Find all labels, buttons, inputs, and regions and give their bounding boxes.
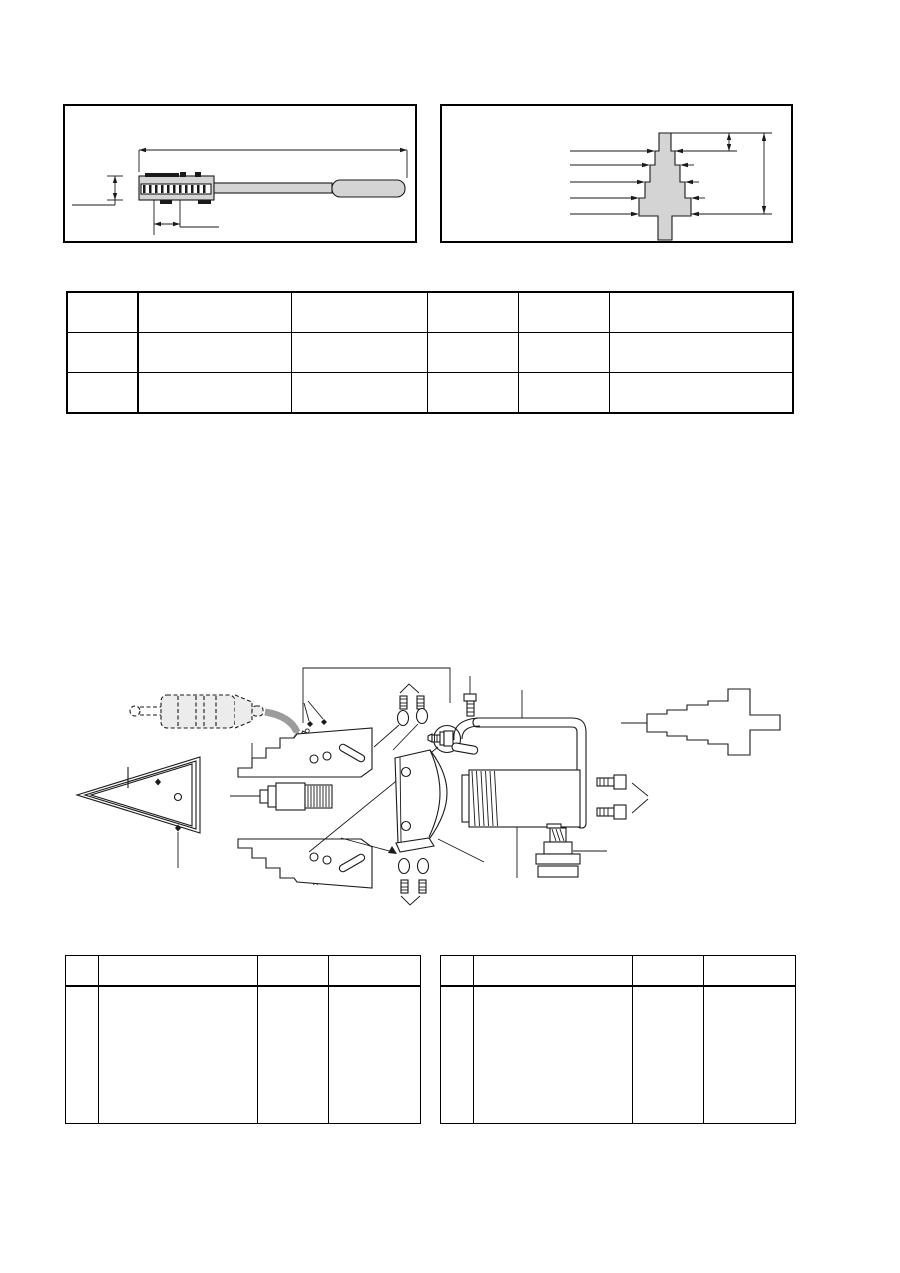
- table-cell: [609, 292, 793, 333]
- exploded-view-figure: [0, 640, 900, 940]
- table-cell: [67, 373, 138, 414]
- tooth-pitch-dimension: [154, 200, 219, 235]
- step-gauge-figure-box: [440, 104, 793, 243]
- table-cell: [258, 986, 329, 1124]
- stepped-gauge-body: [639, 133, 691, 240]
- table-cell: [609, 333, 793, 373]
- height-dimension: [72, 176, 123, 205]
- step-height-dimension: [671, 133, 772, 151]
- step-gauge-drawing: [442, 106, 791, 241]
- grip-handle: [332, 180, 405, 197]
- table-cell: [474, 986, 633, 1124]
- alignment-marks-top: [304, 701, 327, 727]
- table-header-cell: [329, 956, 421, 987]
- socket-screws: [597, 775, 648, 819]
- table-cell: [67, 292, 138, 333]
- table-cell: [99, 986, 258, 1124]
- screw-near-clamp: [464, 676, 476, 716]
- table-cell: [138, 373, 291, 414]
- table-cell: [138, 333, 291, 373]
- table-cell: [704, 986, 796, 1124]
- table-cell: [291, 333, 427, 373]
- lower-stepped-bracket: [238, 839, 372, 888]
- exploded-assembly-drawing: [0, 640, 900, 940]
- table-row: [67, 333, 793, 373]
- table-cell: [329, 986, 421, 1124]
- table-cell: [518, 333, 609, 373]
- washer-screw-set-top: [374, 684, 428, 750]
- table-header-cell: [66, 956, 99, 987]
- table-cell: [138, 292, 291, 333]
- table-header-row: [66, 956, 421, 987]
- table-header-cell: [99, 956, 258, 987]
- spec-table: [66, 291, 794, 414]
- parts-table-right: [440, 955, 796, 1124]
- table-cell: [67, 333, 138, 373]
- table-cell: [427, 333, 518, 373]
- table-header-cell: [258, 956, 329, 987]
- table-cell: [291, 373, 427, 414]
- comb-teeth: [141, 184, 211, 194]
- stepped-shaft: [621, 689, 780, 755]
- table-header-cell: [704, 956, 796, 987]
- table-cell: [291, 292, 427, 333]
- table-cell: [518, 292, 609, 333]
- table-row: [67, 292, 793, 333]
- table-cell: [609, 373, 793, 414]
- tool-gauge-figure-box: [63, 104, 417, 243]
- threaded-adapter: [230, 783, 332, 810]
- table-row: [441, 986, 796, 1124]
- table-cell: [66, 986, 99, 1124]
- upper-stepped-bracket: [238, 728, 372, 777]
- manual-page: [0, 0, 900, 1273]
- table-cell: [633, 986, 704, 1124]
- table-header-cell: [633, 956, 704, 987]
- table-header-row: [441, 956, 796, 987]
- table-header-cell: [441, 956, 474, 987]
- shaft-adapter-stack: [536, 828, 607, 877]
- dashed-driver-tool: [130, 695, 302, 743]
- table-row: [67, 373, 793, 414]
- tool-shaft: [214, 183, 332, 193]
- table-header-cell: [474, 956, 633, 987]
- table-cell: [518, 373, 609, 414]
- overall-length-dimension: [139, 148, 407, 178]
- table-cell: [441, 986, 474, 1124]
- table-cell: [427, 373, 518, 414]
- triangular-wedge: [77, 757, 200, 868]
- table-row: [66, 986, 421, 1124]
- tool-gauge-drawing: [65, 106, 415, 241]
- overall-height-dimension: [691, 133, 772, 214]
- parts-table-left: [65, 955, 421, 1124]
- table-cell: [427, 292, 518, 333]
